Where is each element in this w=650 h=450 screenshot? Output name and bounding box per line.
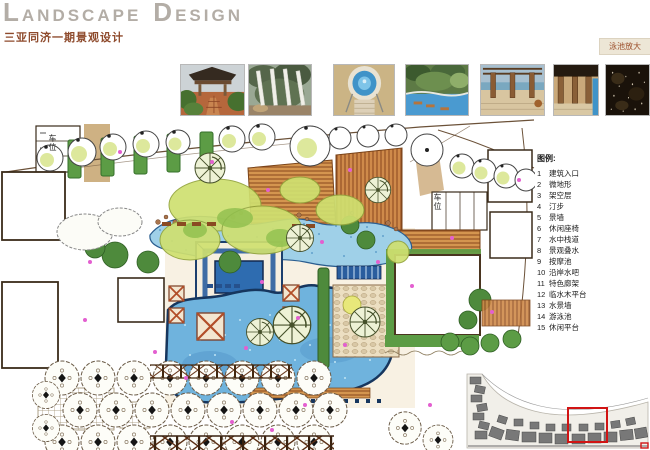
legend: 图例: 1建筑入口 2微地形 3架空层 4汀步 5景墙 6休闲座椅 7水中栈道 … xyxy=(537,153,647,333)
legend-item: 5景墙 xyxy=(537,212,647,223)
photo-thumbnail-pool-colonnade xyxy=(553,64,599,116)
legend-item: 12临水木平台 xyxy=(537,289,647,300)
photo-thumbnail-round-spa-pool xyxy=(333,64,395,116)
photo-thumbnail-seaview-pergola-terrace xyxy=(480,64,545,116)
legend-item: 13水景墙 xyxy=(537,300,647,311)
photo-thumbnail-white-pergola xyxy=(248,64,312,116)
mound-clouds xyxy=(57,208,142,250)
title-word-2: DESIGN xyxy=(153,0,243,28)
site-plan xyxy=(0,110,535,450)
legend-item: 14游泳池 xyxy=(537,311,647,322)
legend-item: 10沿岸水吧 xyxy=(537,267,647,278)
photo-thumbnail-resort-pool-garden xyxy=(405,64,469,116)
parking-label-right: 车位 xyxy=(433,193,442,211)
presentation-board: LANDSCAPEDESIGN 三亚同济一期景观设计 泳池放大 xyxy=(0,0,650,450)
title-word-1: LANDSCAPE xyxy=(3,0,141,28)
locator-minimap xyxy=(462,372,650,450)
water-feature-wall xyxy=(337,266,381,279)
legend-item: 8景观叠水 xyxy=(537,245,647,256)
legend-item: 3架空层 xyxy=(537,190,647,201)
legend-item: 2微地形 xyxy=(537,179,647,190)
parking-label-left: 车位 xyxy=(48,134,57,152)
tab-pool-zoom[interactable]: 泳池放大 xyxy=(599,38,650,55)
legend-item: 6休闲座椅 xyxy=(537,223,647,234)
legend-item: 1建筑入口 xyxy=(537,168,647,179)
legend-title: 图例: xyxy=(537,153,647,164)
photo-thumbnail-dark-water-texture xyxy=(605,64,650,116)
photo-thumbnail-garden-pavilion xyxy=(180,64,245,116)
legend-item: 9按摩池 xyxy=(537,256,647,267)
reference-photo-strip xyxy=(180,64,650,116)
page-title: LANDSCAPEDESIGN xyxy=(3,0,243,28)
legend-item: 15休闲平台 xyxy=(537,322,647,333)
page-subtitle: 三亚同济一期景观设计 xyxy=(4,29,124,45)
legend-item: 11特色廊架 xyxy=(537,278,647,289)
legend-item: 4汀步 xyxy=(537,201,647,212)
site-plan-drawing xyxy=(0,110,535,450)
legend-item: 7水中栈道 xyxy=(537,234,647,245)
